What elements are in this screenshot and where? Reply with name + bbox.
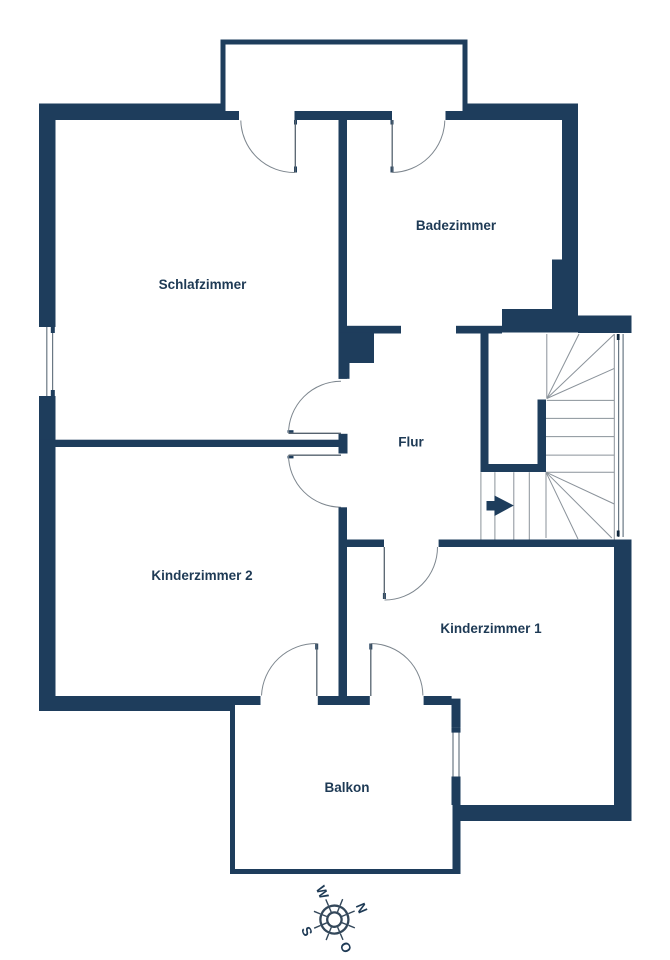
- svg-text:Kinderzimmer 1: Kinderzimmer 1: [440, 621, 542, 636]
- svg-text:Badezimmer: Badezimmer: [416, 218, 497, 233]
- svg-text:Schlafzimmer: Schlafzimmer: [159, 277, 248, 292]
- svg-text:Balkon: Balkon: [324, 780, 369, 795]
- svg-text:Flur: Flur: [398, 435, 424, 450]
- svg-text:Kinderzimmer 2: Kinderzimmer 2: [151, 568, 252, 583]
